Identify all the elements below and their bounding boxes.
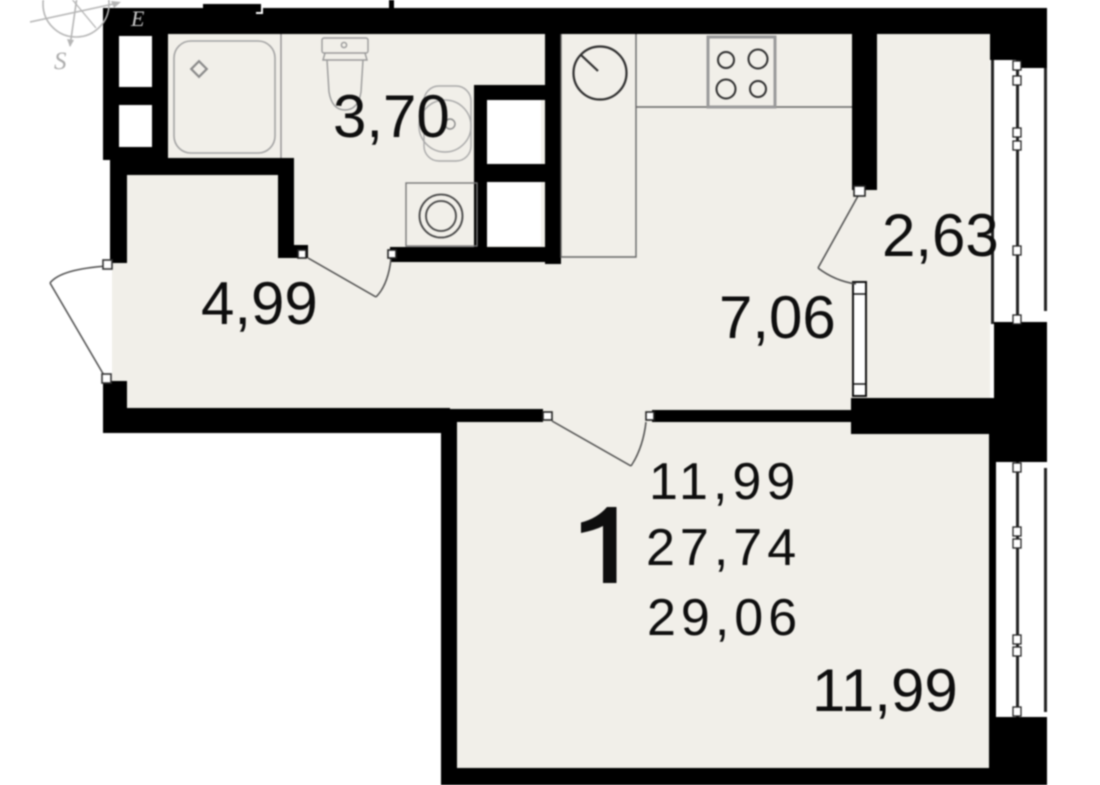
svg-text:7,06: 7,06 xyxy=(719,284,836,351)
svg-text:3,70: 3,70 xyxy=(333,83,450,150)
svg-text:11,99: 11,99 xyxy=(812,657,958,724)
svg-text:27,74: 27,74 xyxy=(646,519,801,577)
svg-text:11,99: 11,99 xyxy=(649,453,800,511)
svg-text:29,06: 29,06 xyxy=(647,589,802,647)
svg-text:2,63: 2,63 xyxy=(882,202,999,269)
svg-text:E: E xyxy=(130,6,145,31)
svg-text:S: S xyxy=(54,48,67,75)
svg-text:4,99: 4,99 xyxy=(201,270,318,337)
